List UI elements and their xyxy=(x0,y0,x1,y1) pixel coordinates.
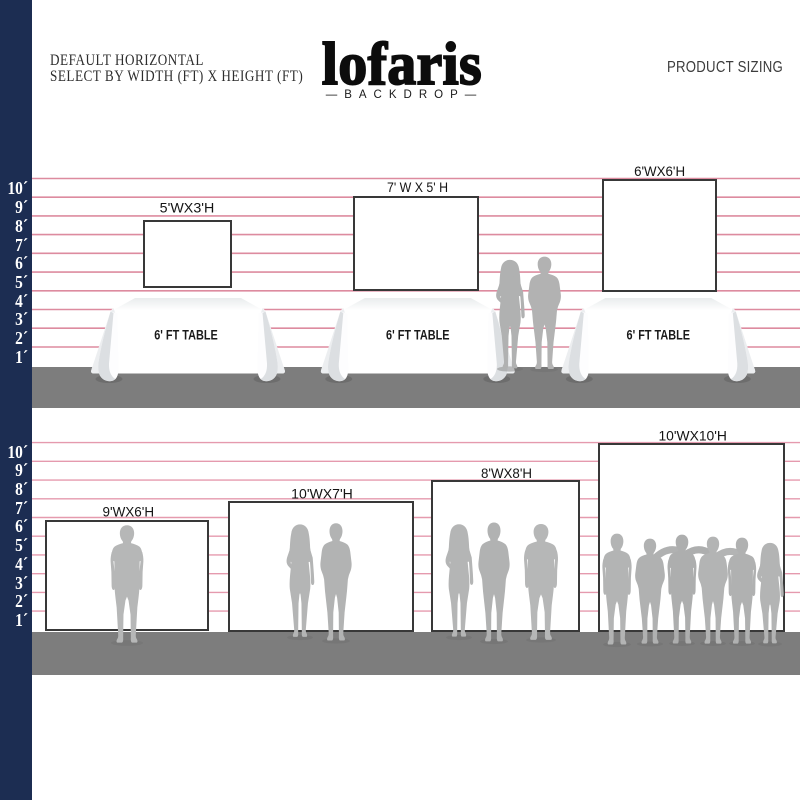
svg-text:8'WX8'H: 8'WX8'H xyxy=(481,465,532,481)
svg-text:6' FT TABLE: 6' FT TABLE xyxy=(154,327,218,343)
svg-text:6'WX6'H: 6'WX6'H xyxy=(634,163,685,179)
svg-text:7' W X 5' H: 7' W X 5' H xyxy=(387,179,448,195)
svg-text:5'WX3'H: 5'WX3'H xyxy=(160,200,215,216)
svg-text:6' FT TABLE: 6' FT TABLE xyxy=(386,327,450,343)
svg-text:9'WX6'H: 9'WX6'H xyxy=(103,504,155,520)
svg-text:10'WX7'H: 10'WX7'H xyxy=(291,486,353,502)
svg-text:6' FT TABLE: 6' FT TABLE xyxy=(627,327,691,343)
svg-text:10'WX10'H: 10'WX10'H xyxy=(658,427,727,443)
